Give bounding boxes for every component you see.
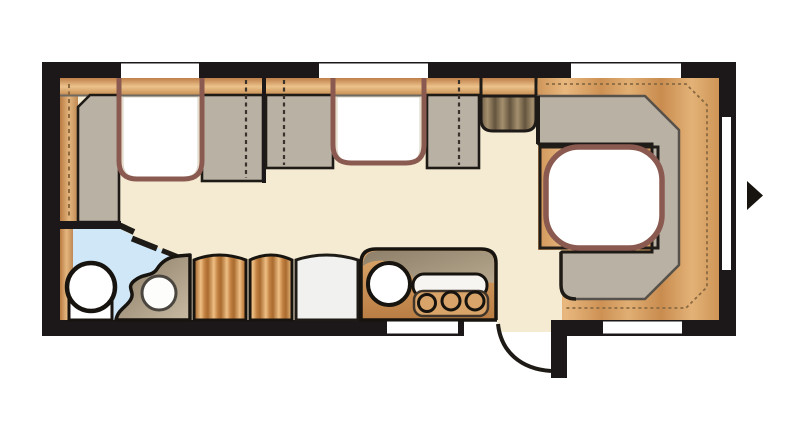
bathroom-wall xyxy=(58,221,121,229)
wardrobe-section-1 xyxy=(194,255,246,320)
entry-floor-patch xyxy=(536,250,562,320)
dinette2-table-top xyxy=(337,97,420,162)
floorplan-drawing xyxy=(0,0,800,445)
window-bottom-kitchen xyxy=(387,322,458,334)
dinette2-right-bench xyxy=(427,95,479,168)
kitchen-sink xyxy=(368,263,410,305)
window-top-1 xyxy=(121,64,199,79)
refrigerator xyxy=(296,255,358,320)
window-top-3 xyxy=(571,64,681,79)
toilet-bowl xyxy=(67,263,115,311)
overhead-locker-strip-top xyxy=(60,78,538,95)
window-top-2 xyxy=(319,64,428,79)
window-bottom-lounge xyxy=(603,322,682,334)
dinette1-side-bench xyxy=(78,95,119,222)
entry-threshold xyxy=(497,320,552,332)
wardrobe-section-2 xyxy=(250,255,292,320)
hob-burner-3 xyxy=(466,292,484,310)
bathroom-sink-basin xyxy=(142,276,176,310)
entry-door-leaf xyxy=(551,320,567,378)
storage-cabinet xyxy=(481,96,536,131)
dinette2-left-bench xyxy=(266,95,333,168)
lounge-table-top xyxy=(546,147,662,248)
caravan-floorplan xyxy=(0,0,800,445)
window-right xyxy=(722,117,731,270)
dinette1-table-top xyxy=(123,97,198,177)
hob-burner-2 xyxy=(442,292,460,310)
hob-burner-1 xyxy=(419,295,436,312)
dinette1-right-bench xyxy=(202,95,263,181)
